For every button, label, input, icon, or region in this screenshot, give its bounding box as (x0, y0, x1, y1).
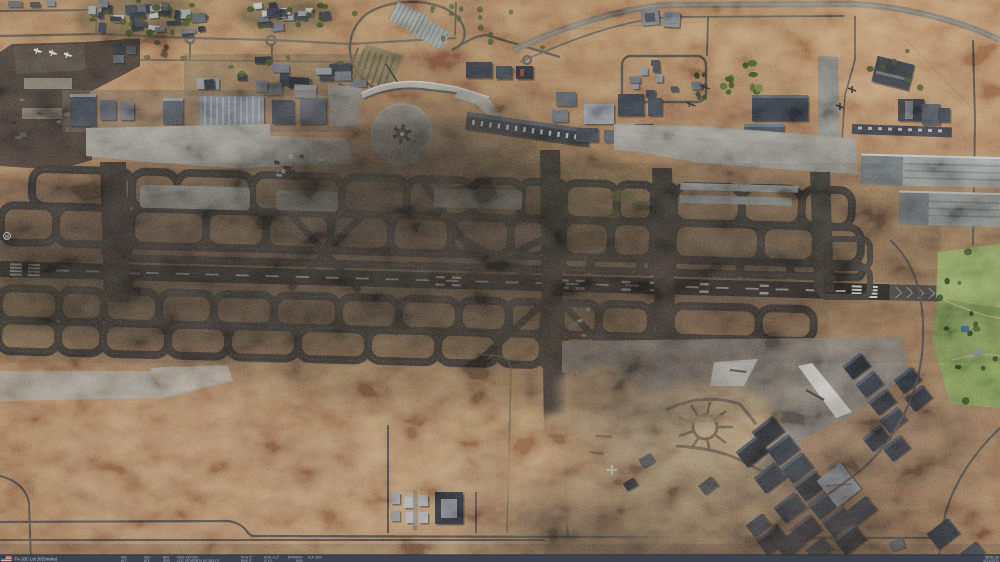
svg-text:RPM: RPM (288, 555, 296, 559)
svg-text:FA-18C Lot 20(Smoke): FA-18C Lot 20(Smoke) (15, 557, 58, 562)
svg-text:FLP 39%: FLP 39% (308, 555, 322, 559)
